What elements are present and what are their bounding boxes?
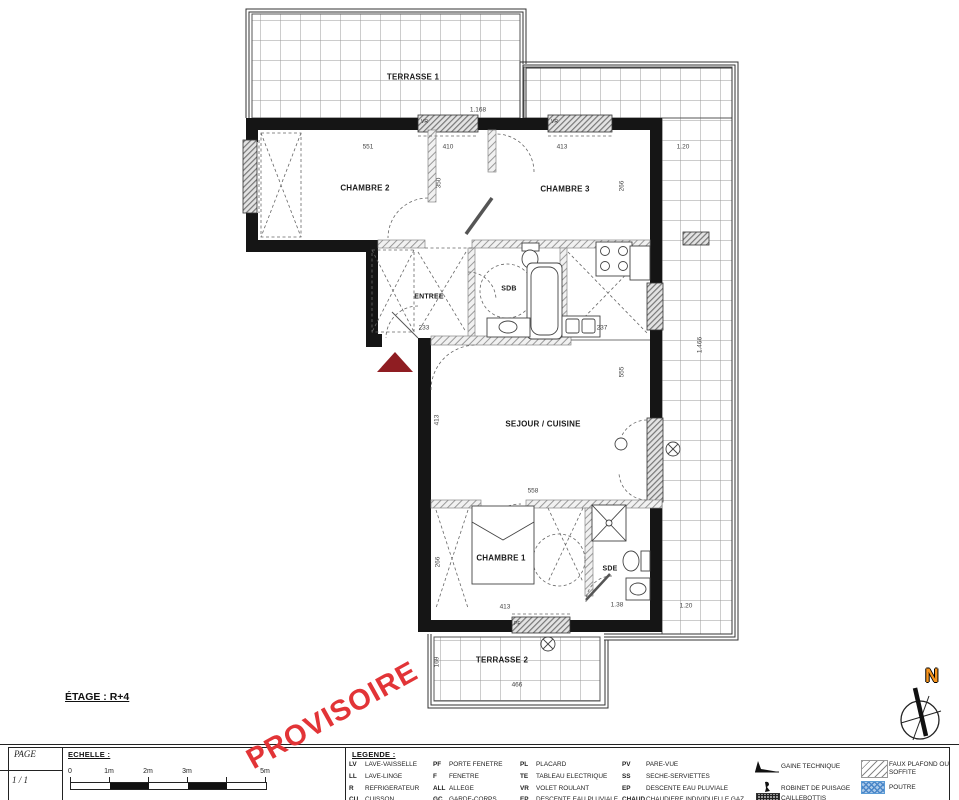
faux-plafond-swatch <box>861 760 888 778</box>
room-label-chambre-3: CHAMBRE 3 <box>540 185 589 194</box>
floor-plan-drawing <box>0 0 959 800</box>
legend-term: DESCENTE EAU PLUVIALE <box>646 785 728 792</box>
room-label-chambre-2: CHAMBRE 2 <box>340 184 389 193</box>
scale-bar-segment <box>188 783 227 789</box>
titleblock-top-line <box>0 744 959 745</box>
legend-term: PARE-VUE <box>646 761 678 768</box>
floor-label: ÉTAGE : R+4 <box>65 691 129 703</box>
dimension: 413 <box>434 415 441 426</box>
dimension: 1.38 <box>611 602 624 609</box>
legend-abbr: R <box>349 785 365 792</box>
room-label-chambre-1: CHAMBRE 1 <box>476 554 525 563</box>
legend-term: LAVE-VAISSELLE <box>365 761 417 768</box>
caillebottis-swatch <box>756 793 780 800</box>
entry-arrow <box>377 352 413 372</box>
legend-abbr: EP <box>622 785 646 792</box>
legend-term: SECHE-SERVIETTES <box>646 773 710 780</box>
legend-abbr: LV <box>349 761 365 768</box>
dimension: 466 <box>512 682 523 689</box>
legend-symbol-label: GAINE TECHNIQUE <box>781 763 840 770</box>
room-label-entree: ENTREE <box>414 294 444 301</box>
legend-term: TABLEAU ELECTRIQUE <box>536 773 607 780</box>
legend-abbr: ALL <box>433 785 449 792</box>
legend-term: CHAUDIERE INDIVIDUELLE GAZ <box>646 796 744 800</box>
legend-column-4: PVPARE-VUE SSSECHE-SERVIETTES EPDESCENTE… <box>622 759 747 800</box>
dimension: 413 <box>500 604 511 611</box>
plan-sheet: TERRASSE 1 CHAMBRE 2 CHAMBRE 3 ENTREE SD… <box>0 0 959 800</box>
margin-divider <box>0 770 8 771</box>
legend-abbr: PL <box>520 761 536 768</box>
dimension: 237 <box>597 325 608 332</box>
north-label: N <box>925 666 939 688</box>
legend-abbr: LL <box>349 773 365 780</box>
page-label: PAGE <box>14 749 36 759</box>
legend-abbr: VR <box>520 785 536 792</box>
robinet-de-puisage-icon <box>761 781 773 793</box>
north-arrow-icon <box>890 682 950 744</box>
scale-tick-label: 1m <box>104 768 114 775</box>
dimension: 551 <box>363 144 374 151</box>
legend-column-2: PFPORTE FENETRE FFENETRE ALLALLEGE GCGAR… <box>433 759 519 800</box>
scale-bar <box>70 782 267 790</box>
room-label-terrasse-1: TERRASSE 1 <box>387 73 439 82</box>
legend-term: ALLEGE <box>449 785 474 792</box>
legend-abbr: TE <box>520 773 536 780</box>
room-label-terrasse-2: TERRASSE 2 <box>476 656 528 665</box>
legend-term: PLACARD <box>536 761 566 768</box>
legend-symbol-label: ROBINET DE PUISAGE <box>781 785 850 792</box>
legend-column-3: PLPLACARD TETABLEAU ELECTRIQUE VRVOLET R… <box>520 759 620 800</box>
legend-abbr: CU <box>349 796 365 800</box>
room-label-sde: SDE <box>603 566 618 573</box>
page-number: 1 / 1 <box>12 775 28 785</box>
legend-term: REFRIGERATEUR <box>365 785 419 792</box>
page-box-divider <box>8 770 63 771</box>
scale-bar-segment <box>110 783 149 789</box>
legend-abbr: CHAUD <box>622 796 646 800</box>
legend-term: LAVE-LINGE <box>365 773 402 780</box>
legend-symbol-label: CAILLEBOTTIS <box>781 795 826 800</box>
dimension: 266 <box>435 557 442 568</box>
dimension: 1.466 <box>697 337 704 353</box>
dimension: 233 <box>419 325 430 332</box>
legend-term: VOLET ROULANT <box>536 785 589 792</box>
dimension: 555 <box>619 367 626 378</box>
dimension: 413 <box>557 144 568 151</box>
dimension: 350 <box>436 178 443 189</box>
legend-hatch-label: POUTRE <box>889 784 916 791</box>
poutre-swatch <box>861 781 885 794</box>
legend-abbr: EP <box>520 796 536 800</box>
legend-term: PORTE FENETRE <box>449 761 503 768</box>
dimension: 410 <box>443 144 454 151</box>
scale-label: ECHELLE : <box>68 750 110 759</box>
dimension: 266 <box>619 181 626 192</box>
legend-term: GARDE-CORPS <box>449 796 497 800</box>
legend-title: LEGENDE : <box>352 750 396 759</box>
dimension: 1.168 <box>470 107 486 114</box>
scale-tick-label: 3m <box>182 768 192 775</box>
legend-abbr: PV <box>622 761 646 768</box>
legend-abbr: SS <box>622 773 646 780</box>
scale-tick-label: 2m <box>143 768 153 775</box>
dimension: 558 <box>528 488 539 495</box>
room-label-sdb: SDB <box>501 286 516 293</box>
legend-term: FENETRE <box>449 773 479 780</box>
scale-tick-label: 0 <box>68 768 72 775</box>
dimension: 1.20 <box>680 603 693 610</box>
gaine-technique-icon <box>754 760 780 773</box>
dimension: 169 <box>434 657 441 668</box>
window-tag-vr: VR <box>421 119 428 125</box>
window-tag-pf: PF <box>514 621 520 627</box>
legend-term: DESCENTE EAU PLUVIALE <box>536 796 618 800</box>
room-label-sejour-cuisine: SEJOUR / CUISINE <box>505 420 580 429</box>
legend-abbr: PF <box>433 761 449 768</box>
legend-abbr: F <box>433 773 449 780</box>
legend-hatch-label: FAUX PLAFOND OU SOFFITE <box>889 761 951 777</box>
legend-column-1: LVLAVE-VAISSELLE LLLAVE-LINGE RREFRIGERA… <box>349 759 431 800</box>
dimension: 1.20 <box>677 144 690 151</box>
legend-abbr: GC <box>433 796 449 800</box>
window-tag-vr: VR <box>551 119 558 125</box>
legend-term: CUISSON <box>365 796 394 800</box>
